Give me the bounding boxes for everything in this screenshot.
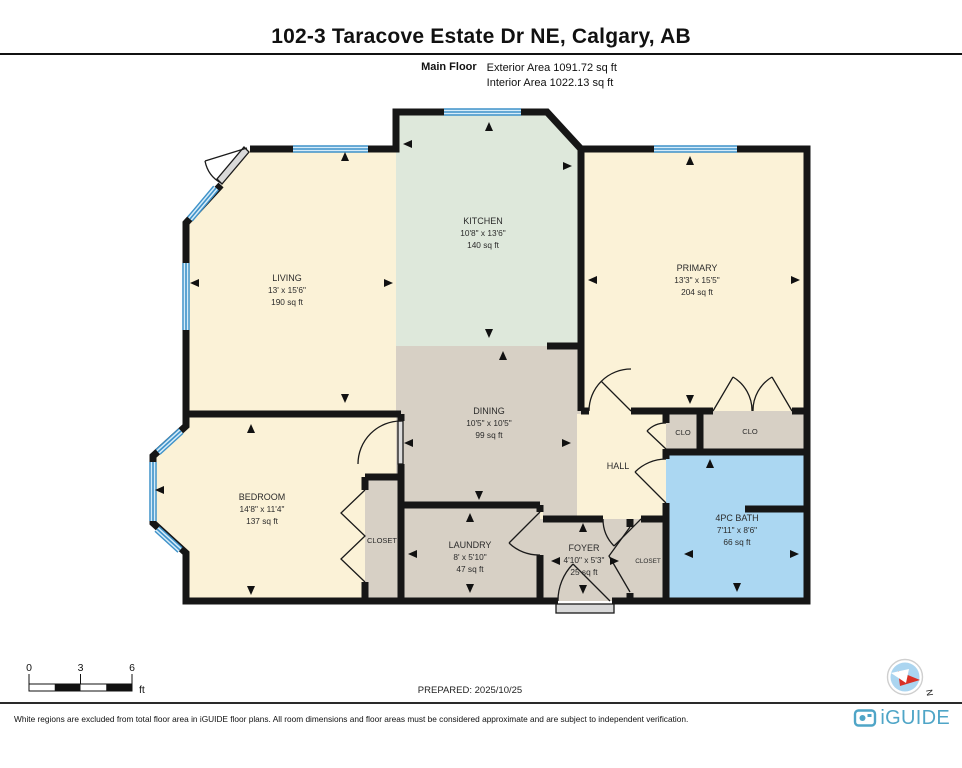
svg-text:47 sq ft: 47 sq ft <box>456 564 484 574</box>
svg-text:LIVING: LIVING <box>272 273 302 283</box>
svg-text:13'3" x 15'5": 13'3" x 15'5" <box>674 275 720 285</box>
svg-text:PRIMARY: PRIMARY <box>677 263 718 273</box>
brand-logo: iGUIDE <box>853 706 950 730</box>
scale-unit: ft <box>139 684 145 696</box>
brand-name: iGUIDE <box>880 707 950 730</box>
scale-tick-0: 0 <box>26 662 32 674</box>
svg-text:10'8" x 13'6": 10'8" x 13'6" <box>460 228 506 238</box>
svg-text:25 sq ft: 25 sq ft <box>570 567 598 577</box>
svg-text:10'5" x 10'5": 10'5" x 10'5" <box>466 418 512 428</box>
room-label-closet-bedroom: CLOSET <box>367 536 397 545</box>
svg-text:99 sq ft: 99 sq ft <box>475 430 503 440</box>
bedroom-door-slab <box>398 421 403 464</box>
svg-text:4PC BATH: 4PC BATH <box>715 513 758 523</box>
disclaimer-text: White regions are excluded from total fl… <box>14 714 714 724</box>
svg-text:13' x 15'6": 13' x 15'6" <box>268 285 306 295</box>
prepared-date: PREPARED: 2025/10/25 <box>418 685 522 696</box>
scale-tick-3: 3 <box>78 662 84 674</box>
svg-text:LAUNDRY: LAUNDRY <box>449 540 492 550</box>
svg-text:14'8" x 11'4": 14'8" x 11'4" <box>240 504 285 514</box>
compass-north-label: N <box>924 689 935 697</box>
svg-text:140 sq ft: 140 sq ft <box>467 240 500 250</box>
svg-text:KITCHEN: KITCHEN <box>463 216 503 226</box>
svg-text:8' x 5'10": 8' x 5'10" <box>453 552 486 562</box>
svg-text:4'10" x 5'3": 4'10" x 5'3" <box>564 555 605 565</box>
room-label-hall: HALL <box>607 461 630 471</box>
room-label-clo-2: CLO <box>742 427 758 436</box>
compass-icon: N <box>888 660 936 697</box>
scale-bar: 0 3 6 ft <box>26 662 145 696</box>
iguide-icon <box>853 706 877 730</box>
room-label-closet-entry: CLOSET <box>635 558 661 565</box>
entry-stoop <box>556 604 614 613</box>
svg-text:BEDROOM: BEDROOM <box>239 492 286 502</box>
floor-plan-canvas: LIVING 13' x 15'6" 190 sq ft KITCHEN 10'… <box>0 0 962 768</box>
room-label-living: LIVING 13' x 15'6" 190 sq ft <box>268 273 306 307</box>
floorplan-page: 102-3 Taracove Estate Dr NE, Calgary, AB… <box>0 0 962 768</box>
svg-text:137 sq ft: 137 sq ft <box>246 516 279 526</box>
room-label-clo-1: CLO <box>675 428 691 437</box>
svg-text:204 sq ft: 204 sq ft <box>681 287 714 297</box>
footer-divider <box>0 702 962 704</box>
svg-text:DINING: DINING <box>473 406 505 416</box>
svg-text:66 sq ft: 66 sq ft <box>723 537 751 547</box>
svg-text:190 sq ft: 190 sq ft <box>271 297 304 307</box>
scale-tick-6: 6 <box>129 662 135 674</box>
svg-text:FOYER: FOYER <box>568 543 600 553</box>
svg-text:7'11" x 8'6": 7'11" x 8'6" <box>717 525 757 535</box>
